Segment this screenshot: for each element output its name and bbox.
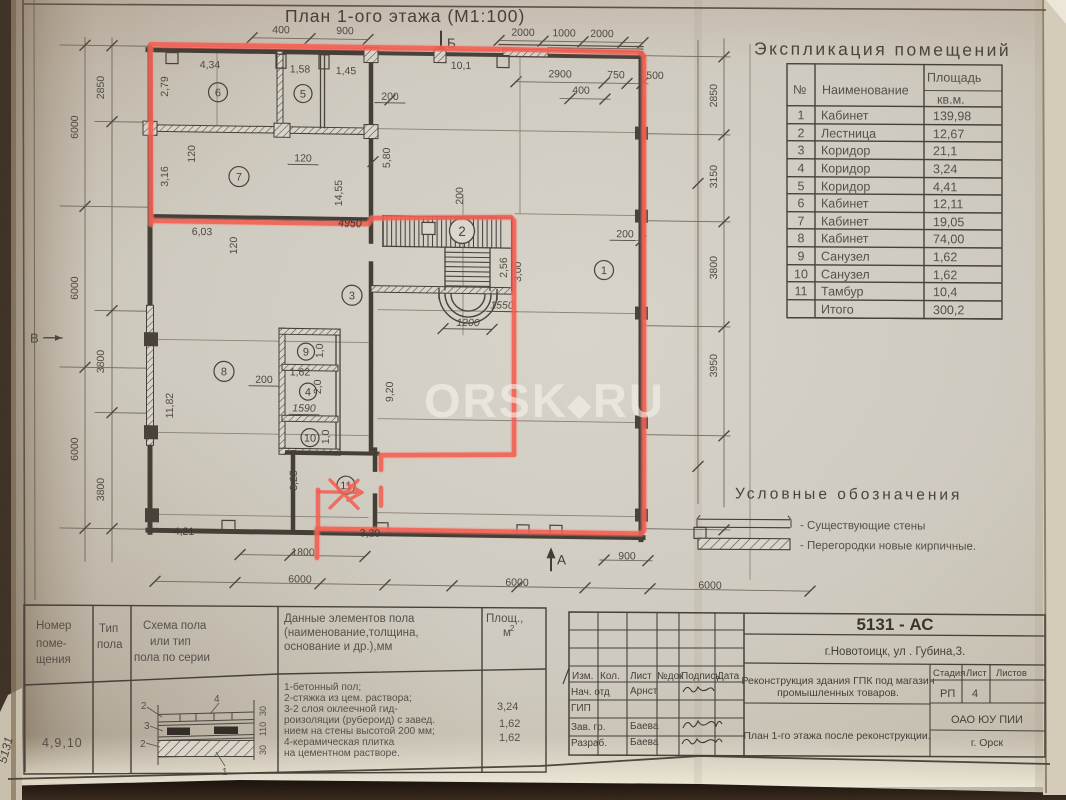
svg-text:Коридор: Коридор [821,161,870,175]
svg-text:30: 30 [258,706,268,716]
svg-text:12,67: 12,67 [933,127,964,141]
svg-text:1: 1 [798,108,805,122]
svg-text:Кол.: Кол. [600,671,620,682]
svg-text:Реконструкция здания ГПК под м: Реконструкция здания ГПК под магазин [741,675,934,687]
svg-text:Лист: Лист [966,668,987,679]
svg-text:г.Новотоицк, ул . Губина,3.: г.Новотоицк, ул . Губина,3. [825,646,965,658]
svg-text:Условные обозначения: Условные обозначения [735,485,962,503]
svg-text:Площ.,: Площ., [486,613,523,625]
svg-text:3,20: 3,20 [360,527,381,539]
svg-text:10,4: 10,4 [933,285,957,299]
svg-text:Данные элементов пола: Данные элементов пола [284,613,415,625]
svg-text:30: 30 [258,745,268,755]
svg-text:Итого: Итого [821,302,854,316]
svg-text:11: 11 [795,284,808,298]
svg-text:Кабинет: Кабинет [821,231,869,245]
svg-text:4-керамическая плитка: 4-керамическая плитка [284,737,395,748]
svg-text:Нач. отд: Нач. отд [571,687,610,698]
svg-text:5131 - АС: 5131 - АС [856,615,933,634]
svg-text:ГИП: ГИП [571,703,591,714]
svg-text:4950: 4950 [338,217,362,229]
svg-text:Кабинет: Кабинет [821,108,869,122]
svg-text:Разраб.: Разраб. [571,737,607,749]
svg-text:РП: РП [940,688,955,700]
svg-text:№: № [793,83,806,97]
svg-text:2: 2 [141,701,147,712]
svg-text:Арнст: Арнст [630,686,658,697]
svg-text:1-бетонный пол;: 1-бетонный пол; [284,681,361,693]
svg-text:Тамбур: Тамбур [821,284,863,298]
svg-text:7: 7 [798,214,805,228]
svg-text:Коридор: Коридор [821,179,870,193]
svg-text:Лестница: Лестница [821,126,876,140]
svg-text:10: 10 [794,267,808,281]
svg-text:- Перегородки новые кирпичные.: - Перегородки новые кирпичные. [800,540,976,553]
svg-text:139,98: 139,98 [933,109,971,123]
svg-text:- Существующие стены: - Существующие стены [800,520,925,533]
svg-text:Лист: Лист [630,671,652,682]
svg-text:Схема пола: Схема пола [143,620,207,632]
svg-text:Стадия: Стадия [933,668,965,679]
svg-text:1,62: 1,62 [499,718,520,730]
svg-text:12,11: 12,11 [933,197,963,211]
svg-text:пола: пола [97,639,123,651]
svg-text:300,2: 300,2 [933,303,964,317]
svg-text:110: 110 [258,722,268,736]
svg-text:г. Орск: г. Орск [971,737,1004,749]
svg-text:2: 2 [798,126,805,140]
svg-text:нием на стены высотой 200 мм;: нием на стены высотой 200 мм; [284,726,435,737]
svg-text:1,62: 1,62 [933,250,957,264]
svg-text:4: 4 [798,161,805,175]
svg-text:Баева: Баева [630,721,659,732]
svg-text:Санузел: Санузел [821,267,870,281]
svg-text:3,24: 3,24 [933,162,957,176]
svg-text:План 1-го этажа после реконст: План 1-го этажа после реконструкции. [743,730,930,742]
svg-text:21,1: 21,1 [933,144,957,158]
svg-text:Коридор: Коридор [821,143,870,157]
svg-text:поме-: поме- [36,638,67,650]
svg-text:Площадь: Площадь [927,71,981,85]
svg-text:3: 3 [144,721,150,732]
svg-text:Кабинет: Кабинет [821,196,869,210]
svg-text:роизоляции (рубероид) с завед.: роизоляции (рубероид) с завед. [284,714,435,726]
svg-text:(наименование,толщина,: (наименование,толщина, [284,627,419,639]
svg-text:4: 4 [972,688,978,700]
svg-text:4,41: 4,41 [933,180,957,194]
svg-text:5: 5 [798,179,805,193]
svg-text:ОАО ЮУ ПИИ: ОАО ЮУ ПИИ [951,714,1023,726]
svg-text:9: 9 [798,249,805,263]
svg-text:2-стяжка из цем. раствора;: 2-стяжка из цем. раствора; [284,693,412,704]
svg-text:Дата: Дата [717,671,740,682]
svg-text:19,05: 19,05 [933,215,964,229]
svg-text:Подпись: Подпись [681,671,721,682]
svg-text:3: 3 [798,143,805,157]
svg-text:4,21: 4,21 [174,526,195,538]
svg-text:Баева: Баева [630,737,659,748]
svg-text:основание и др.),мм: основание и др.),мм [284,641,392,653]
svg-text:4,9,10: 4,9,10 [42,736,83,750]
svg-text:на цементном растворе.: на цементном растворе. [284,748,400,759]
svg-text:2: 2 [140,739,146,750]
svg-text:Санузел: Санузел [821,249,870,263]
svg-text:1,62: 1,62 [499,732,520,744]
svg-text:промышленных товаров.: промышленных товаров. [777,687,899,699]
svg-text:или тип: или тип [150,636,191,648]
svg-text:Кабинет: Кабинет [821,214,869,228]
svg-text:3-2 слоя оклеечной гид-: 3-2 слоя оклеечной гид- [284,704,398,715]
svg-text:1,62: 1,62 [933,268,957,282]
svg-text:6: 6 [798,196,805,210]
svg-text:3,24: 3,24 [497,701,518,713]
svg-text:Тип: Тип [99,623,118,635]
svg-text:Зав. гр.: Зав. гр. [571,722,605,733]
svg-text:Изм.: Изм. [572,671,593,682]
svg-text:Наименование: Наименование [822,83,909,98]
svg-text:Номер: Номер [36,620,71,632]
svg-text:1: 1 [222,767,228,778]
svg-text:2: 2 [510,624,515,633]
svg-text:кв.м.: кв.м. [937,93,965,107]
svg-text:пола по серии: пола по серии [134,652,210,664]
svg-text:8: 8 [798,231,805,245]
svg-text:Листов: Листов [996,668,1027,679]
svg-text:щения: щения [36,654,71,666]
svg-text:Экспликация помещений: Экспликация помещений [754,39,1011,61]
svg-text:ORSK◆RU: ORSK◆RU [424,374,665,427]
svg-text:74,00: 74,00 [933,232,964,246]
